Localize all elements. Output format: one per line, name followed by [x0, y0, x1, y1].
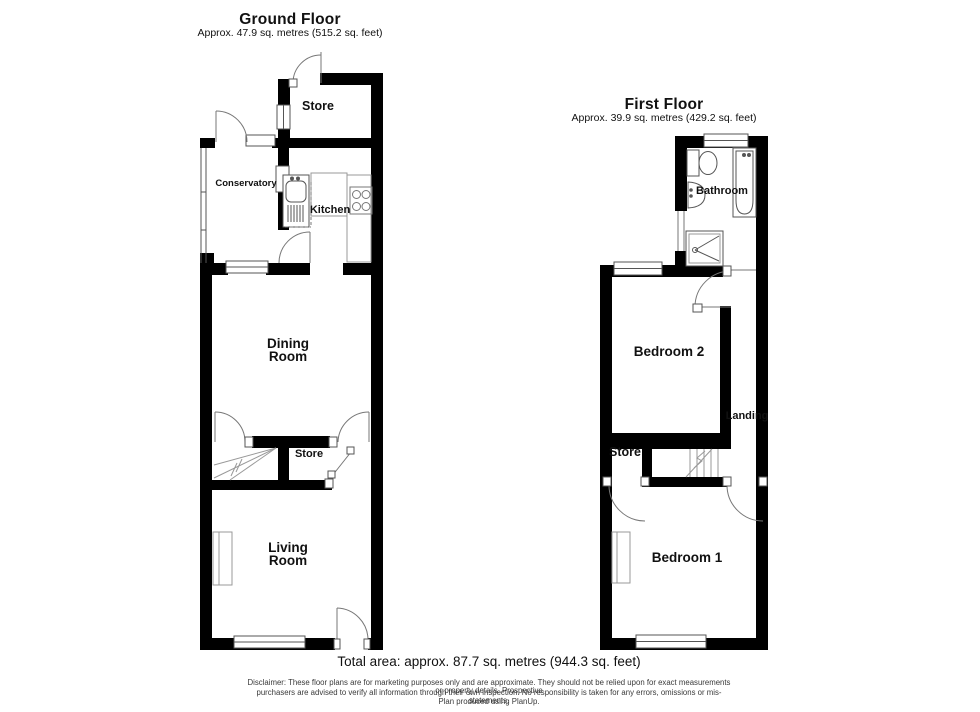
gf-understairs-lines	[214, 448, 276, 480]
room-label-store-top: Store	[302, 100, 334, 113]
gf-fireplace	[213, 532, 232, 585]
ground-floor-title: Ground Floor	[239, 12, 340, 28]
bathtub	[733, 148, 756, 217]
first-floor-title: First Floor	[625, 97, 704, 113]
gf-kitchen-fixtures	[283, 173, 372, 262]
room-label-dining-room: Dining Room	[267, 337, 309, 363]
ground-floor-subtitle: Approx. 47.9 sq. metres (515.2 sq. feet)	[197, 28, 382, 39]
floorplan-drawing	[0, 0, 980, 712]
gf-cupboard-door-arc	[215, 412, 245, 442]
kitchen-sink	[283, 175, 309, 227]
gf-conservatory-top-window	[246, 135, 275, 146]
room-label-store-mid: Store	[295, 449, 323, 460]
disclaimer-line-3: Plan produced using PlanUp.	[439, 698, 540, 706]
gf-conservatory-door-arc	[216, 111, 247, 142]
first-floor-subtitle: Approx. 39.9 sq. metres (429.2 sq. feet)	[571, 113, 756, 124]
kitchen-counter-right	[347, 175, 371, 262]
gf-kitchen-door-arc	[279, 232, 310, 263]
room-label-bathroom: Bathroom	[696, 186, 748, 197]
toilet	[687, 150, 717, 176]
room-label-conservatory: Conservatory	[215, 179, 276, 189]
kitchen-hob	[350, 187, 372, 214]
room-label-landing: Landing	[726, 411, 769, 422]
ff-stairs	[686, 449, 718, 477]
ff-stairs-zigzag	[694, 451, 705, 468]
ff-bathroom-fixtures	[686, 148, 756, 266]
room-label-bedroom2: Bedroom 2	[634, 345, 705, 358]
room-label-bedroom1: Bedroom 1	[652, 551, 723, 564]
room-label-kitchen: Kitchen	[310, 205, 350, 216]
shower	[686, 231, 723, 266]
floorplan-canvas: Ground Floor Approx. 47.9 sq. metres (51…	[0, 0, 980, 712]
room-label-store-ff: Store	[609, 446, 641, 459]
gf-front-door-arc	[337, 608, 368, 640]
ff-store-door-arc	[609, 485, 645, 521]
gf-conservatory-glazing	[201, 148, 206, 263]
ff-chimney-breast	[612, 532, 630, 583]
room-label-living-room: Living Room	[268, 541, 308, 567]
total-area-text: Total area: approx. 87.7 sq. metres (944…	[337, 655, 640, 669]
gf-dining-door-arc	[338, 412, 369, 442]
